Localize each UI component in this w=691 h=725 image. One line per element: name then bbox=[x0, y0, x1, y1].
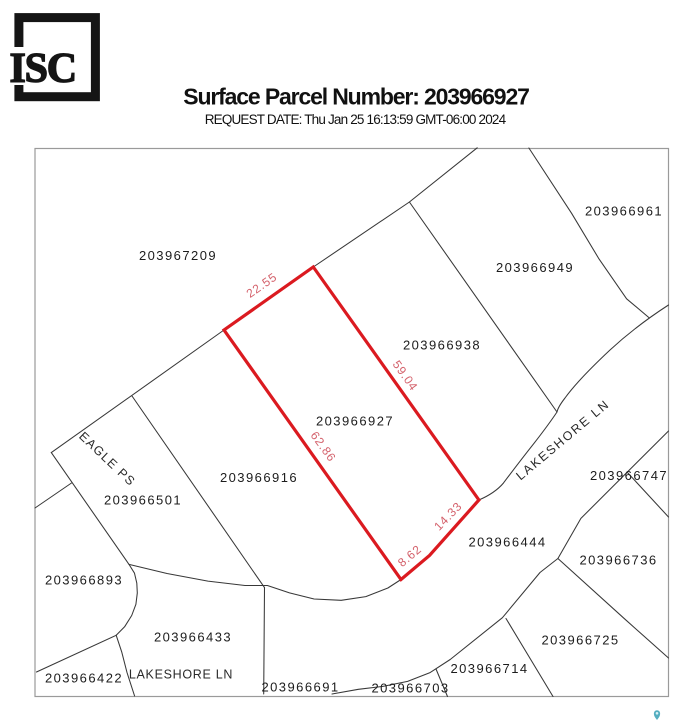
svg-text:203966444: 203966444 bbox=[468, 535, 546, 550]
svg-text:203966725: 203966725 bbox=[541, 633, 619, 648]
svg-text:203966422: 203966422 bbox=[45, 671, 123, 686]
svg-text:203966938: 203966938 bbox=[403, 338, 481, 353]
svg-text:203966714: 203966714 bbox=[450, 661, 528, 676]
svg-text:203966747: 203966747 bbox=[590, 468, 668, 483]
svg-text:ISC: ISC bbox=[10, 46, 76, 92]
svg-text:203966433: 203966433 bbox=[154, 630, 232, 645]
svg-text:Surface Parcel Number: 2039669: Surface Parcel Number: 203966927 bbox=[183, 84, 529, 110]
svg-text:203966927: 203966927 bbox=[316, 414, 394, 429]
svg-text:203966736: 203966736 bbox=[579, 553, 657, 568]
svg-text:203966501: 203966501 bbox=[104, 493, 182, 508]
svg-text:203966893: 203966893 bbox=[45, 573, 123, 588]
svg-text:203966691: 203966691 bbox=[261, 680, 339, 695]
svg-text:203967209: 203967209 bbox=[139, 248, 217, 263]
svg-text:REQUEST DATE: Thu Jan 25 16:13: REQUEST DATE: Thu Jan 25 16:13:59 GMT-06… bbox=[205, 112, 507, 127]
svg-text:203966703: 203966703 bbox=[371, 681, 449, 696]
svg-text:LAKESHORE LN: LAKESHORE LN bbox=[129, 668, 233, 682]
svg-text:203966961: 203966961 bbox=[585, 204, 663, 219]
svg-text:203966949: 203966949 bbox=[496, 260, 574, 275]
svg-text:203966916: 203966916 bbox=[220, 470, 298, 485]
